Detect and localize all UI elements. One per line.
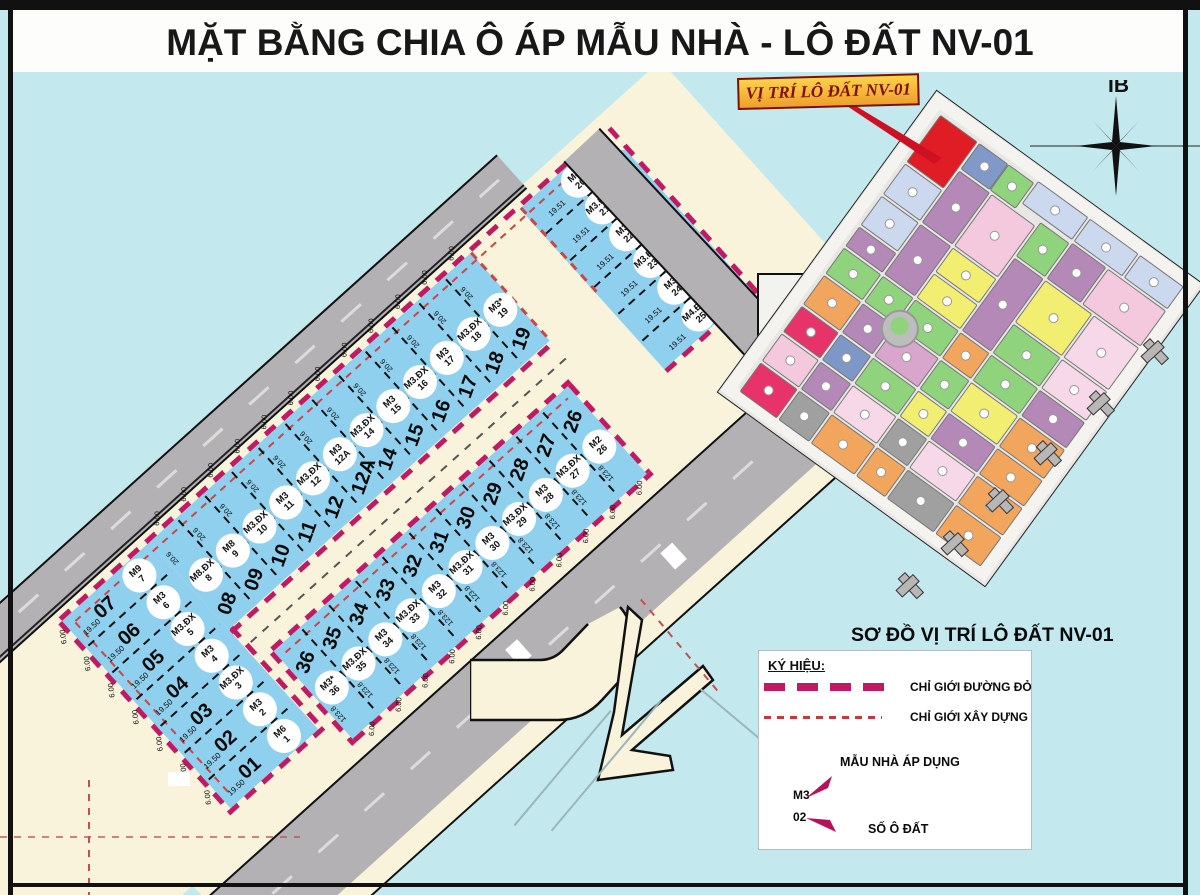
svg-text:IB: IB — [1108, 80, 1129, 97]
